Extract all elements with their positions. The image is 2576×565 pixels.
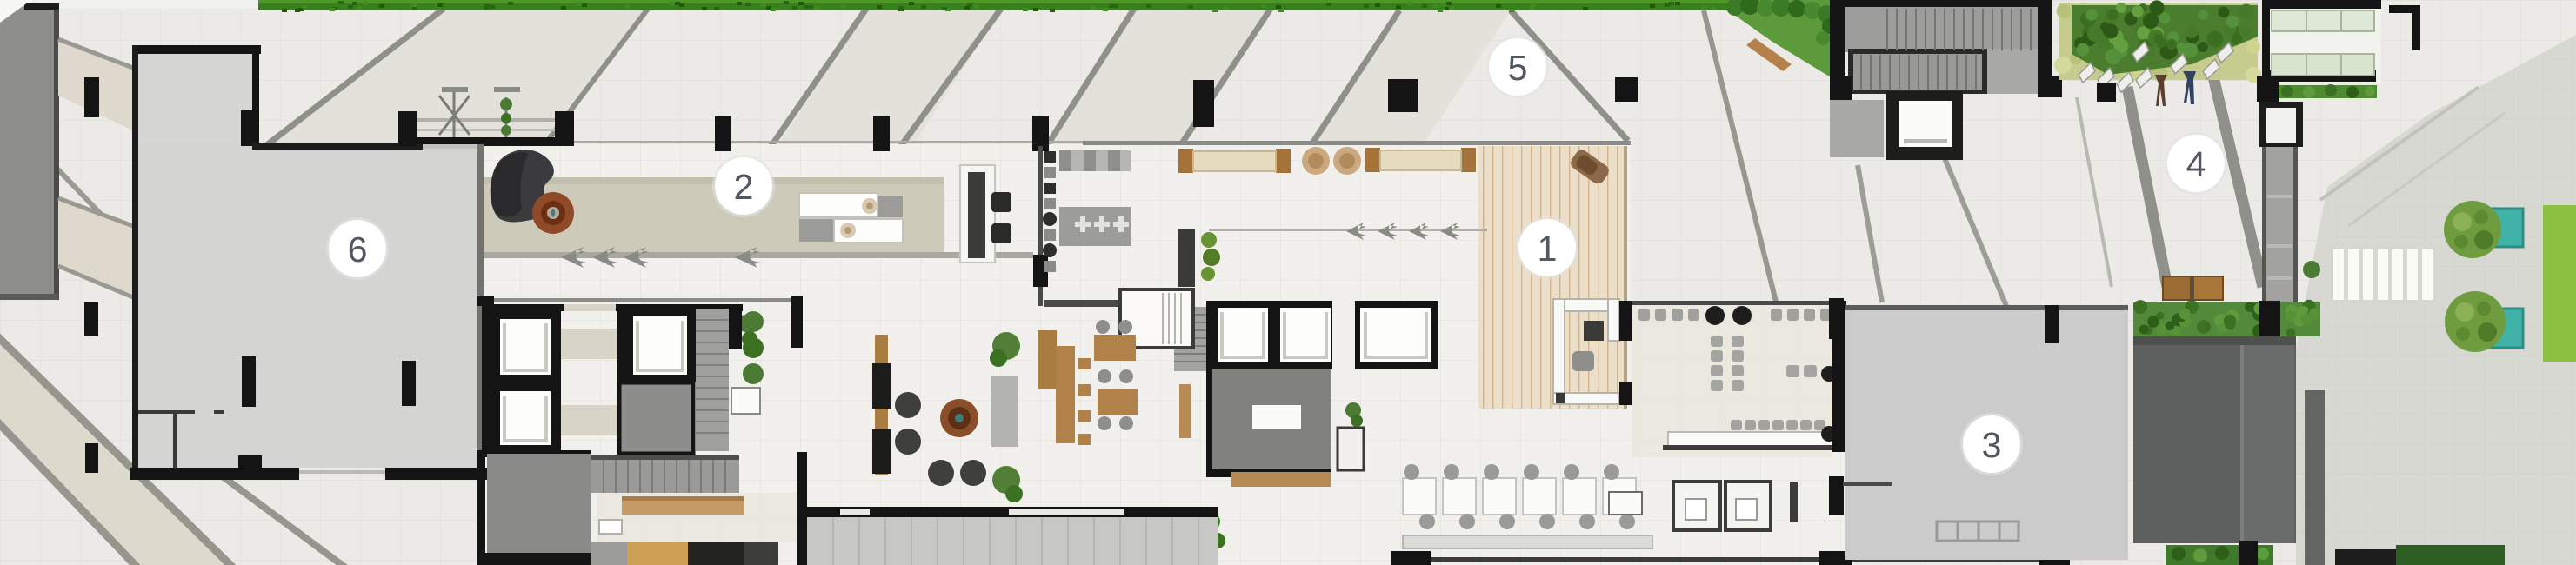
svg-text:6: 6 (348, 229, 368, 269)
svg-text:2: 2 (734, 167, 754, 207)
svg-text:5: 5 (1508, 48, 1528, 88)
svg-text:4: 4 (2186, 144, 2206, 184)
svg-text:1: 1 (1538, 229, 1558, 269)
svg-text:3: 3 (1982, 425, 2002, 465)
